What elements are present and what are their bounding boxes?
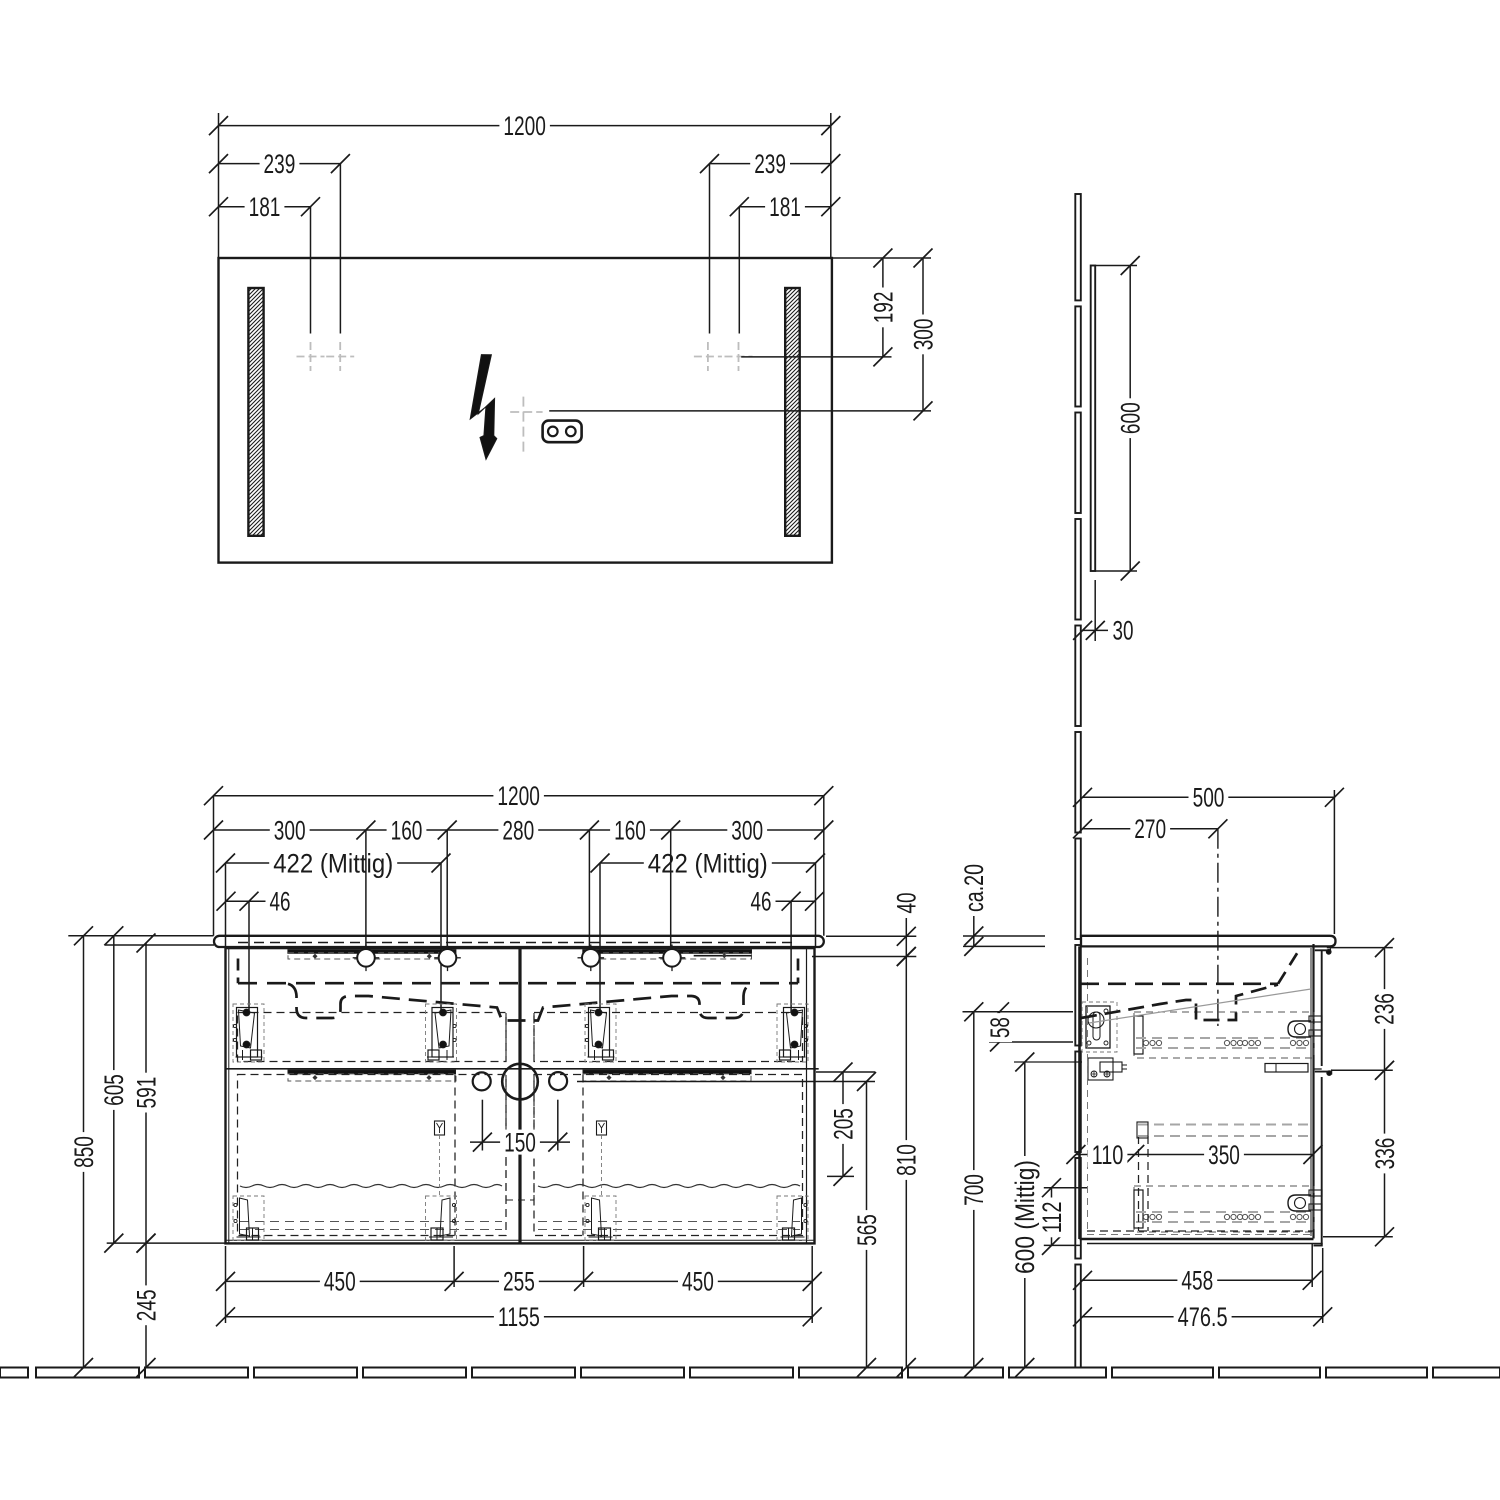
svg-text:192: 192 bbox=[868, 292, 898, 324]
svg-text:850: 850 bbox=[69, 1136, 99, 1168]
svg-text:1200: 1200 bbox=[503, 111, 546, 141]
svg-text:605: 605 bbox=[99, 1074, 129, 1106]
svg-text:46: 46 bbox=[270, 887, 291, 917]
svg-text:422 (Mittig): 422 (Mittig) bbox=[273, 848, 393, 878]
svg-text:810: 810 bbox=[892, 1144, 922, 1176]
svg-text:181: 181 bbox=[769, 192, 801, 222]
svg-text:422 (Mittig): 422 (Mittig) bbox=[648, 848, 768, 878]
svg-text:565: 565 bbox=[852, 1214, 882, 1246]
svg-text:245: 245 bbox=[131, 1289, 161, 1321]
svg-text:600 (Mittig): 600 (Mittig) bbox=[1010, 1160, 1040, 1274]
svg-text:300: 300 bbox=[274, 815, 306, 845]
svg-text:160: 160 bbox=[391, 815, 423, 845]
svg-text:336: 336 bbox=[1370, 1138, 1400, 1170]
svg-text:591: 591 bbox=[131, 1077, 161, 1109]
svg-text:40: 40 bbox=[892, 893, 922, 914]
svg-text:160: 160 bbox=[614, 815, 646, 845]
svg-text:450: 450 bbox=[324, 1267, 356, 1297]
svg-text:1155: 1155 bbox=[498, 1302, 540, 1332]
svg-text:300: 300 bbox=[908, 319, 938, 351]
svg-text:1200: 1200 bbox=[497, 781, 540, 811]
svg-text:239: 239 bbox=[264, 149, 296, 179]
svg-text:270: 270 bbox=[1134, 814, 1166, 844]
svg-text:236: 236 bbox=[1370, 993, 1400, 1025]
svg-text:ca.20: ca.20 bbox=[959, 864, 989, 912]
svg-text:500: 500 bbox=[1193, 783, 1225, 813]
svg-text:476.5: 476.5 bbox=[1178, 1302, 1228, 1332]
svg-text:350: 350 bbox=[1208, 1140, 1240, 1170]
svg-text:30: 30 bbox=[1113, 616, 1134, 646]
svg-text:112: 112 bbox=[1037, 1202, 1067, 1234]
svg-text:700: 700 bbox=[959, 1174, 989, 1206]
svg-text:458: 458 bbox=[1181, 1266, 1213, 1296]
svg-text:205: 205 bbox=[828, 1108, 858, 1140]
svg-text:280: 280 bbox=[502, 815, 534, 845]
svg-text:110: 110 bbox=[1092, 1140, 1124, 1170]
svg-text:300: 300 bbox=[731, 815, 763, 845]
svg-text:255: 255 bbox=[503, 1267, 535, 1297]
svg-text:450: 450 bbox=[682, 1267, 714, 1297]
svg-text:239: 239 bbox=[754, 149, 786, 179]
svg-text:181: 181 bbox=[249, 192, 281, 222]
svg-text:600: 600 bbox=[1116, 402, 1146, 434]
svg-text:46: 46 bbox=[751, 887, 772, 917]
svg-text:150: 150 bbox=[504, 1127, 536, 1157]
svg-text:58: 58 bbox=[985, 1017, 1015, 1038]
